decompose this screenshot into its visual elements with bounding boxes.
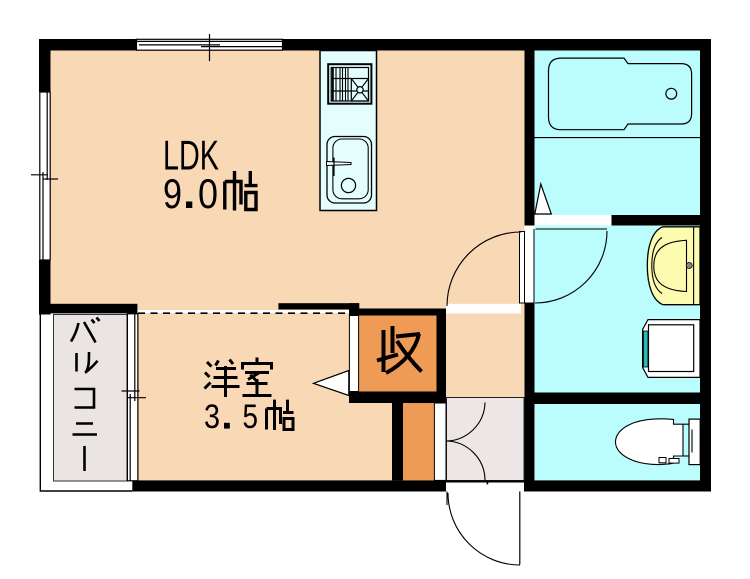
svg-text:5: 5 (243, 398, 259, 436)
svg-text:3: 3 (204, 398, 220, 436)
svg-text:0: 0 (198, 170, 218, 217)
svg-text:9: 9 (163, 170, 182, 217)
